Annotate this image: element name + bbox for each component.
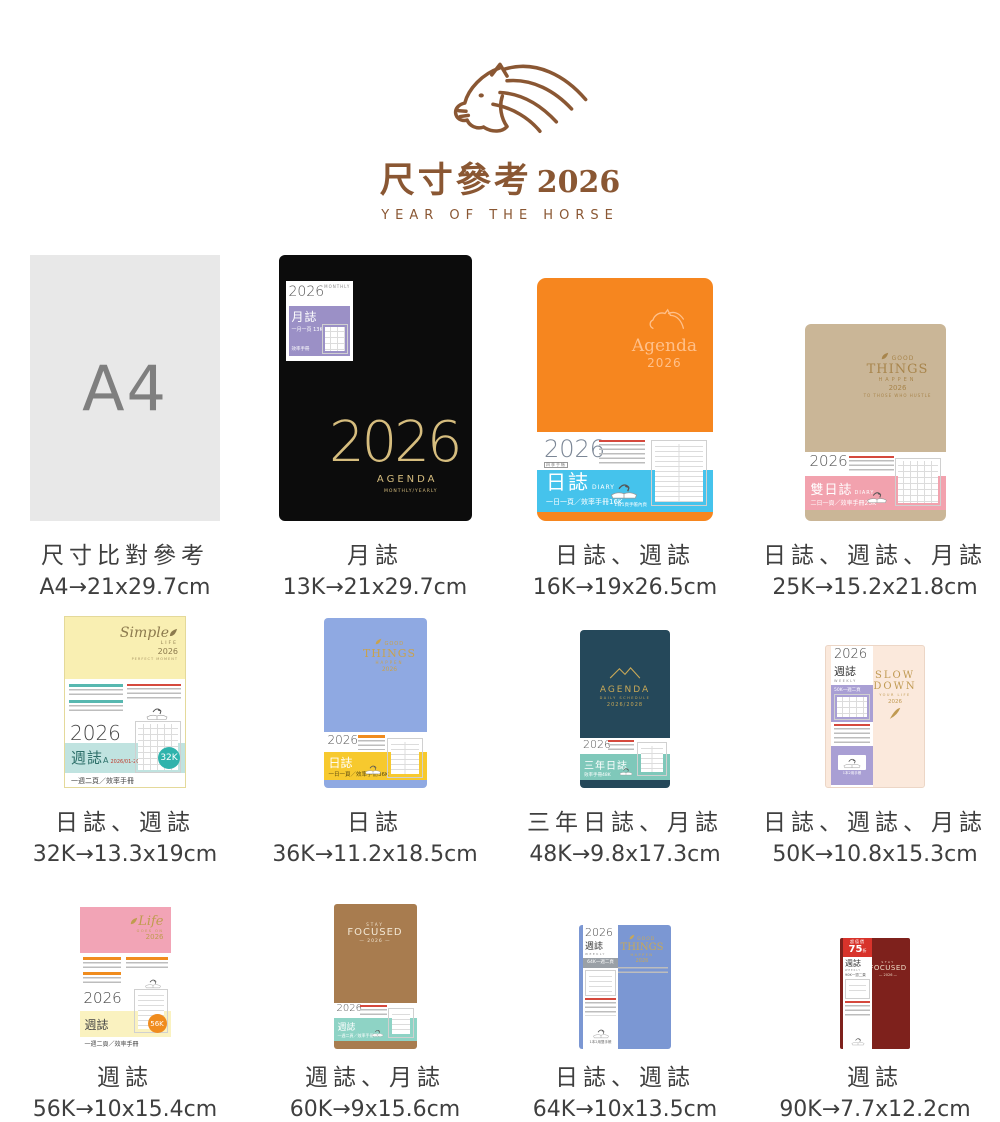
open-book-icon <box>850 1036 866 1046</box>
calendar-thumbnail <box>834 694 870 720</box>
sticker-top: 2026 MONTHLY <box>289 284 350 306</box>
sticker-calendar-thumbnail <box>322 324 348 354</box>
row-3: Life GOES ON 2026 <box>0 901 1000 1122</box>
product-image-16k: Agenda 2026 2026 四季手帳 <box>537 249 713 521</box>
micro-text-lines <box>69 689 123 698</box>
notebook-cover-13k: 2026 MONTHLY 月誌 一月一頁 13K 效率手冊 2026 AGEND… <box>279 255 472 521</box>
micro-text-lines <box>127 688 181 700</box>
belly-band: 2026 四季手帳 日誌DIARY 一日一頁／效率手冊16K <box>537 432 713 512</box>
brand-line: Life <box>130 914 163 929</box>
belly-band: 2026 週誌 一週二頁／效率手冊60K <box>334 1003 417 1041</box>
band-title-en: WEEKLY <box>845 969 870 972</box>
brand-year: 2026 <box>616 958 668 964</box>
badge-number: 75 <box>849 944 863 955</box>
belly-band: 2026 雙日誌DIARY 二日一頁／效率手冊25K <box>805 452 946 510</box>
band-title: 週誌 <box>338 1020 356 1033</box>
brand-year: 2026 <box>120 647 178 656</box>
brand-year: — 2026 — <box>868 973 908 977</box>
size-badge: 32K <box>158 747 180 769</box>
horse-emboss-icon <box>642 308 686 332</box>
brand-line: FOCUSED <box>334 927 417 938</box>
brand-line: GOOD <box>616 934 668 942</box>
side-band: 2026 週誌 WEEKLY 50K一週二頁 <box>831 646 873 787</box>
band-year-logo: 2026 <box>337 1004 362 1014</box>
open-book-icon <box>143 977 163 989</box>
band-spec: 一週二頁／效率手冊 <box>65 773 185 787</box>
caption-title: 日誌、週誌 <box>555 1058 695 1092</box>
product-cell-25k: GOOD THINGS HAPPEN 2026 TO THOSE WHO HUS… <box>750 249 1000 600</box>
caption-size: 13K→21x29.7cm <box>283 575 467 600</box>
notebook-cover-16k: Agenda 2026 2026 四季手帳 <box>537 278 713 521</box>
page-thumbnail <box>388 1008 414 1038</box>
micro-text-lines <box>834 728 870 744</box>
belly-band: 2026 三年日誌 效率手冊48K <box>580 738 670 780</box>
micro-text-lines <box>358 740 385 750</box>
band-color-strip-bottom: 1本2用手帳 <box>831 746 873 785</box>
band-marketing-text <box>608 740 634 752</box>
caption-title: 週誌 <box>847 1058 903 1092</box>
row-1: A4 尺寸比對參考 A4→21x29.7cm 2026 MONTHLY 月誌 <box>0 249 1000 600</box>
brand-line: HAPPEN <box>616 953 668 957</box>
band-title-text: 週誌 <box>585 942 603 952</box>
micro-text-lines <box>616 967 668 974</box>
band-year-logo: 2026 <box>834 648 870 661</box>
band-marketing-text <box>358 735 385 750</box>
emboss-year: 2026 <box>632 356 697 370</box>
caption-size: 50K→10.8x15.3cm <box>772 842 977 867</box>
micro-text-lines <box>608 744 634 752</box>
band-year: 2026 <box>544 435 605 463</box>
band-marketing-text <box>360 1005 387 1017</box>
band-marketing-text <box>599 440 645 466</box>
open-book-icon <box>143 705 171 721</box>
band-title-text: 雙日誌 <box>811 483 853 498</box>
band-title: 週誌 <box>71 749 103 767</box>
brand-line: Simple <box>120 625 178 641</box>
product-image-64k: GOOD THINGS HAPPEN 2026 2026 週誌 WEEKLY 6… <box>579 901 671 1049</box>
caption-size: 90K→7.7x12.2cm <box>779 1097 970 1122</box>
band-year-logo: 2026 <box>328 734 359 746</box>
feature-checklist <box>834 722 870 746</box>
micro-text-lines <box>83 977 121 985</box>
feature-checklist <box>845 999 870 1019</box>
cover-brand-block: SLOW DOWN YOUR LIFE 2026 <box>870 670 920 725</box>
band-text-left <box>69 684 123 716</box>
belly-band: 2026 日誌 一日一頁／效率手冊36K <box>324 732 427 780</box>
brand-tagline: TO THOSE WHO HUSTLE <box>860 393 936 398</box>
band-year-logo: 2026 <box>583 739 611 750</box>
band-marketing-text <box>849 456 894 472</box>
notebook-cover-50k: SLOW DOWN YOUR LIFE 2026 2026 週誌 WEEKLY <box>825 645 925 788</box>
band-color-strip: 週誌A2026/01-2026/12 32K <box>65 743 185 773</box>
cover-brand-block: Simple LIFE 2026 PERFECT MOMENT <box>120 625 178 661</box>
caption-title: 日誌、週誌 <box>555 536 695 570</box>
open-book-icon <box>618 766 634 776</box>
brand-line: DOWN <box>870 681 920 692</box>
brand-year: 2026 <box>870 699 920 705</box>
product-image-50k: SLOW DOWN YOUR LIFE 2026 2026 週誌 WEEKLY <box>825 616 925 788</box>
band-year-logo: 2026 <box>84 991 122 1006</box>
notebook-cover-56k: Life GOES ON 2026 <box>80 907 171 1049</box>
product-image-25k: GOOD THINGS HAPPEN 2026 TO THOSE WHO HUS… <box>805 249 946 521</box>
caption-title: 尺寸比對參考 <box>41 536 209 570</box>
brand-line: LIFE <box>120 641 178 646</box>
band-spec: 90K一週二頁 <box>845 973 870 978</box>
sticker-tag: MONTHLY <box>324 284 350 289</box>
emboss-brand-name: Agenda <box>632 336 697 356</box>
a4-label: A4 <box>82 352 168 425</box>
brand-line: GOOD <box>860 352 936 362</box>
page-thumbnail <box>895 458 941 506</box>
caption-size: 16K→19x26.5cm <box>533 575 717 600</box>
open-book-icon <box>841 756 863 769</box>
cover-brand-sub: MONTHLY/YEARLY <box>384 489 438 494</box>
sticker-band: 月誌 一月一頁 13K 效率手冊 <box>289 306 350 356</box>
product-cell-a4: A4 尺寸比對參考 A4→21x29.7cm <box>0 249 250 600</box>
micro-heading-line <box>69 700 123 703</box>
product-image-36k: GOOD THINGS HAPPEN 2026 2026 <box>324 616 427 788</box>
micro-text-lines <box>849 460 894 472</box>
product-cell-36k: GOOD THINGS HAPPEN 2026 2026 <box>250 616 500 867</box>
size-badge: 56K <box>148 1014 167 1033</box>
notebook-cover-36k: GOOD THINGS HAPPEN 2026 2026 <box>324 618 427 788</box>
band-spec: 50K一週二頁 <box>834 687 870 693</box>
caption-size: 36K→11.2x18.5cm <box>272 842 477 867</box>
brand-word: Simple <box>120 625 169 641</box>
band-color-strip: 週誌 一週二頁／效率手冊60K <box>334 1018 417 1041</box>
title-subtitle: YEAR OF THE HORSE <box>0 208 1000 223</box>
brand-line: FOCUSED <box>868 964 908 972</box>
caption-title: 日誌、週誌 <box>55 803 195 837</box>
page-thumbnail <box>387 738 423 778</box>
cover-brand-block: GOOD THINGS HAPPEN 2026 <box>361 638 419 673</box>
cover-brand-block: AGENDA DAILY SCHEDULE 2026/2028 <box>580 664 670 708</box>
band-year-logo: 2026 <box>810 454 848 469</box>
band-title-text: 日誌 <box>546 470 590 494</box>
product-image-56k: Life GOES ON 2026 <box>80 901 171 1049</box>
micro-heading-line <box>83 972 121 975</box>
cover-brand-block: Life GOES ON 2026 <box>130 914 163 941</box>
micro-heading-line <box>126 957 168 960</box>
feature-checklist <box>585 996 616 1018</box>
book-icon-box <box>838 755 866 770</box>
title-year: 2026 <box>537 165 621 200</box>
micro-text-lines <box>599 444 645 466</box>
brand-line: SLOW <box>870 670 920 681</box>
band-title-en: WEEKLY <box>834 679 870 683</box>
band-title: 週誌 WEEKLY <box>845 958 870 972</box>
size-reference-page: 尺寸參考2026 YEAR OF THE HORSE A4 尺寸比對參考 A4→… <box>0 0 1000 1105</box>
cover-sticker: 2026 MONTHLY 月誌 一月一頁 13K 效率手冊 <box>286 281 353 361</box>
caption-size: 25K→15.2x21.8cm <box>772 575 977 600</box>
micro-text-line <box>599 440 645 442</box>
micro-heading-line <box>83 957 121 960</box>
band-title: 日誌DIARY <box>546 466 615 495</box>
band-title: 週誌 WEEKLY <box>585 939 616 956</box>
notebook-cover-48k: AGENDA DAILY SCHEDULE 2026/2028 2026 <box>580 630 670 788</box>
band-spec: 一週二頁／效率手冊 <box>80 1037 171 1049</box>
band-spec: 效率手冊48K <box>584 772 611 778</box>
brand-line: THINGS <box>616 942 668 953</box>
cover-brand-block: GOOD THINGS HAPPEN 2026 <box>616 934 668 974</box>
band-title: 週誌 <box>85 1018 109 1032</box>
caption-title: 週誌 <box>97 1058 153 1092</box>
sticker-year: 2026 <box>289 284 325 300</box>
brand-tagline: YOUR LIFE <box>870 693 920 697</box>
notebook-cover-32k: Simple LIFE 2026 PERFECT MOMENT <box>64 616 186 788</box>
product-cell-50k: SLOW DOWN YOUR LIFE 2026 2026 週誌 WEEKLY <box>750 616 1000 867</box>
band-title-en: WEEKLY <box>585 952 616 956</box>
product-cell-13k: 2026 MONTHLY 月誌 一月一頁 13K 效率手冊 2026 AGEND… <box>250 249 500 600</box>
page-header: 尺寸參考2026 YEAR OF THE HORSE <box>0 0 1000 223</box>
band-note: 1本2用手帳 <box>843 771 861 776</box>
brand-line: DAILY SCHEDULE <box>580 696 670 700</box>
caption-size: 64K→10x13.5cm <box>533 1097 717 1122</box>
a4-sheet: A4 <box>30 255 220 521</box>
brand-line: THINGS <box>361 647 419 660</box>
notebook-cover-64k: GOOD THINGS HAPPEN 2026 2026 週誌 WEEKLY 6… <box>579 925 671 1049</box>
micro-text-lines <box>83 962 121 970</box>
product-cell-16k: Agenda 2026 2026 四季手帳 <box>500 249 750 600</box>
open-book-icon <box>864 489 890 504</box>
book-icon-area: 1本2用雙手帳 <box>585 1027 616 1047</box>
caption-size: 56K→10x15.4cm <box>33 1097 217 1122</box>
micro-text-line <box>849 456 894 458</box>
horse-logo-icon <box>400 62 600 150</box>
caption-title: 週誌、月誌 <box>305 1058 445 1092</box>
feather-icon <box>887 707 903 721</box>
belly-band: 2026 效率手帳 週誌A2026/01-2026/12 32K 一週二頁／效率… <box>65 679 185 787</box>
badge-suffix: 折 <box>862 948 866 953</box>
mountain-icon <box>608 666 642 679</box>
micro-heading-line <box>69 684 123 687</box>
band-title: 日誌 <box>329 754 353 771</box>
page-thumbnail <box>585 970 616 996</box>
micro-text-line <box>360 1005 387 1007</box>
brand-tagline-lines: PERFECT MOMENT <box>120 657 178 661</box>
caption-title: 日誌、週誌、月誌 <box>763 803 987 837</box>
micro-text-line <box>608 740 634 742</box>
band-color-strip: 三年日誌 效率手冊48K <box>580 754 670 780</box>
caption-size: 32K→13.3x19cm <box>33 842 217 867</box>
micro-text-lines <box>845 1005 870 1017</box>
book-icon-area <box>845 1036 870 1047</box>
embossed-brand: Agenda 2026 <box>632 308 697 370</box>
caption-title: 日誌、週誌、月誌 <box>763 536 987 570</box>
micro-text-line <box>845 1001 870 1003</box>
cover-year-numerals: 2026 <box>329 410 460 475</box>
page-thumbnail <box>651 440 707 506</box>
micro-text-line <box>834 724 870 726</box>
cover-brand-block: STAY FOCUSED — 2026 — <box>868 960 908 977</box>
discount-badge: 超值價 75折 <box>843 938 872 957</box>
brand-word: GOOD <box>892 355 915 362</box>
band-text-left <box>83 957 121 987</box>
belly-band: 2026 週誌 56K 一週二頁／效率手冊 <box>80 953 171 1049</box>
row-2: Simple LIFE 2026 PERFECT MOMENT <box>0 616 1000 867</box>
band-spec-strip: 64K一週二頁 <box>583 958 618 968</box>
notebook-cover-90k: STAY FOCUSED — 2026 — 超值價 75折 週誌 WEEKLY <box>840 938 910 1049</box>
micro-text-line <box>358 735 385 738</box>
caption-size: 60K→9x15.6cm <box>290 1097 460 1122</box>
brand-year: — 2026 — <box>334 939 417 944</box>
micro-text-lines <box>69 705 123 714</box>
band-text-right <box>126 957 168 971</box>
sticker-note: 效率手冊 <box>292 347 320 353</box>
caption-size: A4→21x29.7cm <box>39 575 210 600</box>
leaf-icon <box>130 917 138 925</box>
brand-years: 2026/2028 <box>580 702 670 708</box>
band-year: 2026 <box>70 721 121 745</box>
leaf-icon <box>169 628 178 637</box>
product-cell-32k: Simple LIFE 2026 PERFECT MOMENT <box>0 616 250 867</box>
open-book-icon <box>607 480 641 500</box>
sticker-title: 月誌 <box>292 308 347 325</box>
band-color-strip: 週誌 56K <box>80 1011 171 1037</box>
brand-word: Life <box>138 914 163 929</box>
brand-line: THINGS <box>860 362 936 377</box>
thumbnail-note: 1日1頁手帳內頁 <box>614 502 647 508</box>
band-year-logo: 2026 四季手帳 <box>544 437 605 468</box>
band-text-right <box>127 684 181 700</box>
brand-year: 2026 <box>361 666 419 673</box>
product-cell-64k: GOOD THINGS HAPPEN 2026 2026 週誌 WEEKLY 6… <box>500 901 750 1122</box>
product-cell-90k: STAY FOCUSED — 2026 — 超值價 75折 週誌 WEEKLY <box>750 901 1000 1122</box>
band-title-text: 週誌 <box>845 959 861 968</box>
caption-title: 三年日誌、月誌 <box>527 803 723 837</box>
page-thumbnail <box>845 979 870 999</box>
notebook-cover-25k: GOOD THINGS HAPPEN 2026 TO THOSE WHO HUS… <box>805 324 946 521</box>
micro-text-lines <box>585 1002 616 1016</box>
band-color-strip: 50K一週二頁 <box>831 685 873 722</box>
leaf-icon <box>375 638 382 645</box>
caption-size: 48K→9.8x17.3cm <box>529 842 720 867</box>
product-image-32k: Simple LIFE 2026 PERFECT MOMENT <box>64 616 186 788</box>
cover-brand: AGENDA <box>377 474 438 485</box>
side-band: 超值價 75折 週誌 WEEKLY 90K一週二頁 <box>843 938 872 1049</box>
band-title-text: 週誌 <box>834 665 856 678</box>
band-color-strip: 日誌 一日一頁／效率手冊36K <box>324 752 427 780</box>
band-year-logo: 2026 <box>585 927 616 938</box>
leaf-icon <box>881 352 889 360</box>
notebook-cover-60k: STAY FOCUSED — 2026 — 2026 <box>334 904 417 1049</box>
product-cell-56k: Life GOES ON 2026 <box>0 901 250 1122</box>
page-thumbnail <box>637 742 667 776</box>
leaf-icon <box>629 934 635 940</box>
brand-year: 2026 <box>130 933 163 941</box>
caption-title: 日誌 <box>347 803 403 837</box>
micro-text-lines <box>360 1009 387 1017</box>
band-title-suffix: A <box>103 756 108 765</box>
product-image-a4: A4 <box>30 249 220 521</box>
cover-brand-block: GOOD THINGS HAPPEN 2026 TO THOSE WHO HUS… <box>860 352 936 398</box>
band-color-strip: 雙日誌DIARY 二日一頁／效率手冊25K <box>805 476 946 510</box>
badge-value: 75折 <box>843 945 872 955</box>
micro-text-line <box>585 998 616 1000</box>
brand-year: 2026 <box>860 384 936 392</box>
brand-line: GOOD <box>361 638 419 647</box>
open-book-icon <box>591 1027 611 1039</box>
product-image-48k: AGENDA DAILY SCHEDULE 2026/2028 2026 <box>580 616 670 788</box>
product-cell-60k: STAY FOCUSED — 2026 — 2026 <box>250 901 500 1122</box>
brand-line: HAPPEN <box>860 377 936 383</box>
product-image-13k: 2026 MONTHLY 月誌 一月一頁 13K 效率手冊 2026 AGEND… <box>279 249 472 521</box>
open-book-icon <box>363 763 383 775</box>
brand-line: AGENDA <box>580 685 670 695</box>
brand-line: HAPPEN <box>361 660 419 665</box>
product-image-90k: STAY FOCUSED — 2026 — 超值價 75折 週誌 WEEKLY <box>840 901 910 1049</box>
product-cell-48k: AGENDA DAILY SCHEDULE 2026/2028 2026 <box>500 616 750 867</box>
micro-text-line <box>127 684 181 686</box>
band-note: 1本2用雙手帳 <box>590 1040 612 1045</box>
open-book-icon <box>370 1028 385 1037</box>
band-title: 週誌 WEEKLY <box>834 663 870 683</box>
micro-text-lines <box>126 962 168 971</box>
page-title: 尺寸參考2026 <box>0 152 1000 203</box>
side-band: 2026 週誌 WEEKLY 64K一週二頁 <box>583 925 618 1049</box>
product-image-60k: STAY FOCUSED — 2026 — 2026 <box>334 901 417 1049</box>
title-text: 尺寸參考 <box>380 161 532 201</box>
caption-title: 月誌 <box>347 536 403 570</box>
cover-brand-block: STAY FOCUSED — 2026 — <box>334 922 417 944</box>
